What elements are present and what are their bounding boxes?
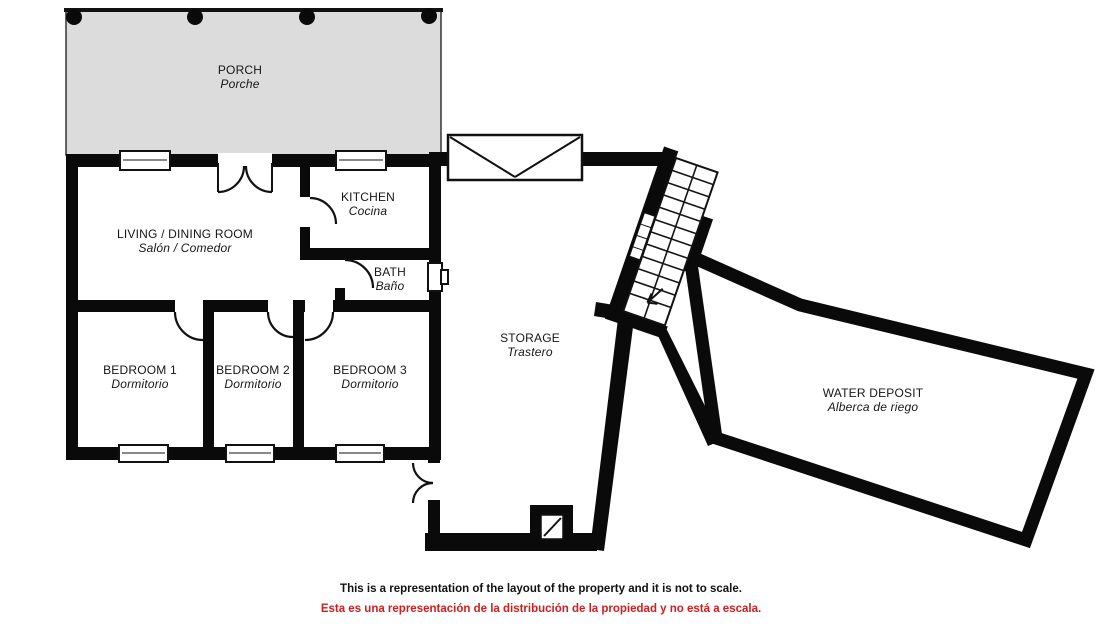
- room-name-es: Porche: [218, 77, 262, 91]
- room-label-bedroom1: BEDROOM 1 Dormitorio: [103, 363, 177, 391]
- room-name-en: BATH: [374, 265, 406, 279]
- room-name-en: WATER DEPOSIT: [823, 386, 924, 400]
- room-label-porch: PORCH Porche: [218, 63, 262, 91]
- room-label-kitchen: KITCHEN Cocina: [341, 190, 395, 218]
- bath-window: [428, 263, 448, 291]
- floor-plan: PORCH Porche LIVING / DINING ROOM Salón …: [0, 0, 1104, 632]
- porch-column-icon: [421, 8, 437, 24]
- room-name-en: PORCH: [218, 63, 262, 77]
- bath-door: [345, 260, 373, 288]
- porch-column-icon: [299, 9, 315, 25]
- bedroom1-door: [175, 312, 203, 340]
- room-name-en: BEDROOM 2: [216, 363, 290, 377]
- room-name-en: BEDROOM 1: [103, 363, 177, 377]
- room-name-es: Salón / Comedor: [117, 241, 253, 255]
- entrance-gate: [448, 135, 582, 180]
- kitchen-door: [310, 198, 336, 224]
- bedroom3-door: [305, 312, 333, 340]
- room-name-es: Dormitorio: [333, 377, 407, 391]
- porch-column-icon: [66, 9, 82, 25]
- room-name-es: Alberca de riego: [823, 400, 924, 414]
- room-label-bath: BATH Baño: [374, 265, 406, 293]
- room-label-water-deposit: WATER DEPOSIT Alberca de riego: [823, 386, 924, 414]
- porch-column-icon: [187, 9, 203, 25]
- chimney-block: [530, 505, 573, 545]
- room-name-es: Baño: [374, 279, 406, 293]
- room-label-living: LIVING / DINING ROOM Salón / Comedor: [117, 227, 253, 255]
- room-label-storage: STORAGE Trastero: [500, 331, 560, 359]
- floor-plan-drawing: [0, 0, 1104, 632]
- room-name-en: STORAGE: [500, 331, 560, 345]
- room-name-en: KITCHEN: [341, 190, 395, 204]
- room-name-en: LIVING / DINING ROOM: [117, 227, 253, 241]
- room-name-es: Dormitorio: [216, 377, 290, 391]
- disclaimer-english: This is a representation of the layout o…: [340, 583, 742, 595]
- room-name-es: Cocina: [341, 204, 395, 218]
- disclaimer-spanish: Esta es una representación de la distrib…: [321, 603, 761, 615]
- room-name-es: Dormitorio: [103, 377, 177, 391]
- bedroom2-door: [268, 312, 293, 337]
- room-name-en: BEDROOM 3: [333, 363, 407, 377]
- room-label-bedroom3: BEDROOM 3 Dormitorio: [333, 363, 407, 391]
- room-name-es: Trastero: [500, 345, 560, 359]
- room-label-bedroom2: BEDROOM 2 Dormitorio: [216, 363, 290, 391]
